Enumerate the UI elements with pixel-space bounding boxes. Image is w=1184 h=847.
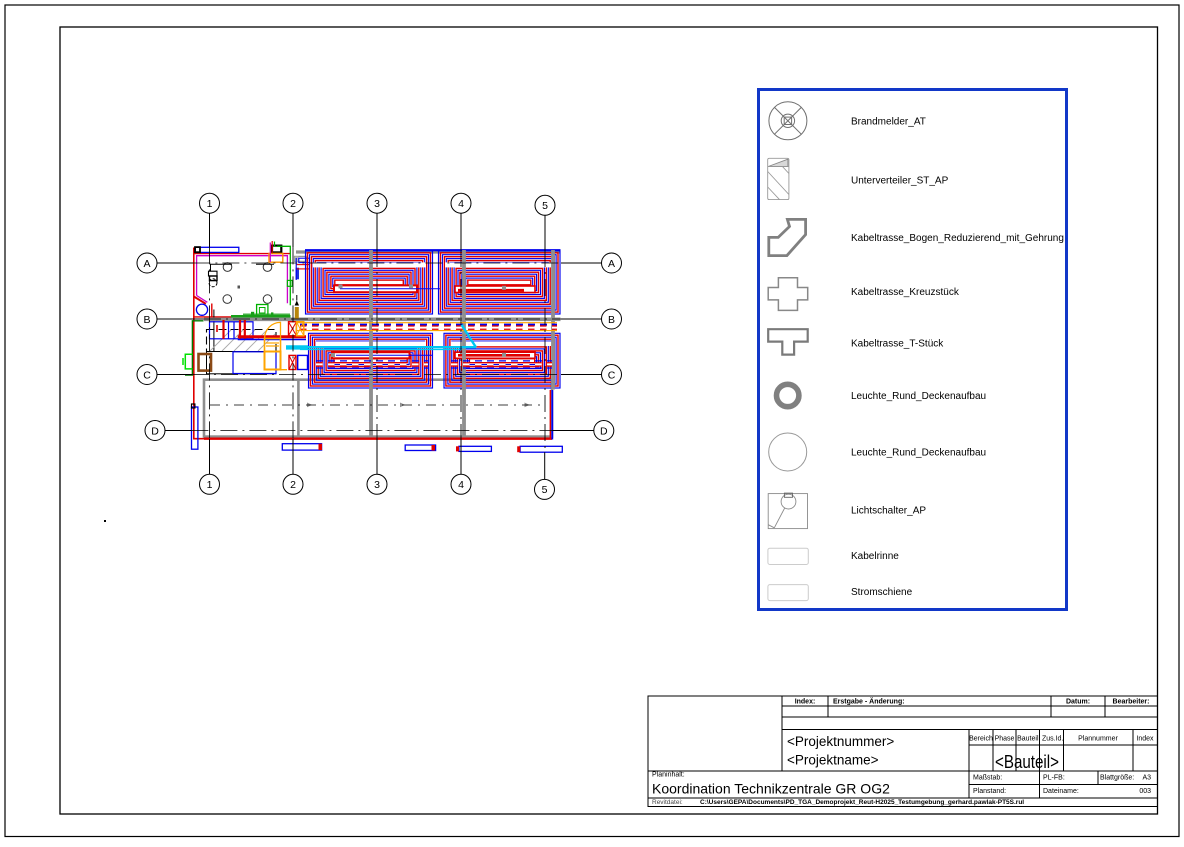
svg-text:Leuchte_Rund_Deckenaufbau: Leuchte_Rund_Deckenaufbau (851, 391, 986, 402)
svg-text:Brandmelder_AT: Brandmelder_AT (851, 117, 926, 128)
svg-text:Dateiname:: Dateiname: (1043, 788, 1079, 795)
svg-text:5: 5 (542, 200, 548, 212)
svg-text:A3: A3 (1142, 775, 1151, 782)
svg-text:C:\Users\GEPA\Documents\PD_TGA: C:\Users\GEPA\Documents\PD_TGA_Demoproje… (700, 799, 1024, 806)
svg-text:5: 5 (542, 484, 548, 496)
svg-text:Leuchte_Rund_Deckenaufbau: Leuchte_Rund_Deckenaufbau (851, 448, 986, 459)
svg-text:Index: Index (1136, 736, 1154, 743)
svg-text:Kabeltrasse_Bogen_Reduzierend_: Kabeltrasse_Bogen_Reduzierend_mit_Gehrun… (851, 233, 1064, 244)
svg-text:PL-FB:: PL-FB: (1043, 775, 1065, 782)
svg-text:Kabeltrasse_T-Stück: Kabeltrasse_T-Stück (851, 339, 944, 350)
svg-text:003: 003 (1139, 788, 1151, 795)
svg-text:Bauteil: Bauteil (1017, 736, 1039, 743)
svg-text:Bereich: Bereich (969, 736, 993, 743)
svg-text:Phase: Phase (995, 736, 1015, 743)
svg-text:4: 4 (458, 479, 464, 491)
svg-text:Revitdatei:: Revitdatei: (652, 799, 683, 806)
svg-text:3: 3 (374, 479, 380, 491)
svg-text:D: D (151, 425, 159, 437)
svg-text:Koordination Technikzentrale G: Koordination Technikzentrale GR OG2 (652, 781, 890, 797)
svg-text:4: 4 (458, 198, 464, 210)
svg-text:Unterverteiler_ST_AP: Unterverteiler_ST_AP (851, 176, 949, 187)
svg-text:Stromschiene: Stromschiene (851, 587, 913, 598)
svg-text:C: C (143, 369, 151, 381)
svg-text:Blattgröße:: Blattgröße: (1100, 775, 1134, 782)
svg-text:2: 2 (290, 479, 296, 491)
svg-text:2: 2 (290, 198, 296, 210)
svg-text:<Bauteil>: <Bauteil> (995, 752, 1059, 772)
svg-text:Maßstab:: Maßstab: (973, 775, 1002, 782)
svg-text:3: 3 (374, 198, 380, 210)
svg-text:B: B (143, 314, 150, 326)
svg-text:Erstgabe - Änderung:: Erstgabe - Änderung: (833, 698, 905, 706)
svg-text:1: 1 (207, 479, 213, 491)
svg-text:Index:: Index: (795, 699, 816, 706)
svg-text:Planinhalt:: Planinhalt: (652, 772, 685, 779)
svg-text:Planstand:: Planstand: (973, 788, 1006, 795)
svg-text:Lichtschalter_AP: Lichtschalter_AP (851, 506, 926, 517)
svg-text:D: D (600, 425, 608, 437)
svg-text:Plannummer: Plannummer (1078, 736, 1118, 743)
svg-text:<Projektnummer>: <Projektnummer> (787, 734, 894, 749)
svg-text:B: B (608, 314, 615, 326)
svg-text:Zus.Id.: Zus.Id. (1042, 736, 1063, 743)
svg-text:A: A (608, 258, 615, 270)
svg-text:A: A (143, 258, 150, 270)
svg-text:Kabelrinne: Kabelrinne (851, 551, 899, 562)
svg-text:<Projektname>: <Projektname> (787, 753, 879, 768)
svg-text:C: C (608, 369, 616, 381)
svg-text:1: 1 (207, 198, 213, 210)
svg-text:Bearbeiter:: Bearbeiter: (1113, 699, 1150, 706)
svg-text:Kabeltrasse_Kreuzstück: Kabeltrasse_Kreuzstück (851, 287, 960, 298)
svg-text:Datum:: Datum: (1066, 699, 1090, 706)
